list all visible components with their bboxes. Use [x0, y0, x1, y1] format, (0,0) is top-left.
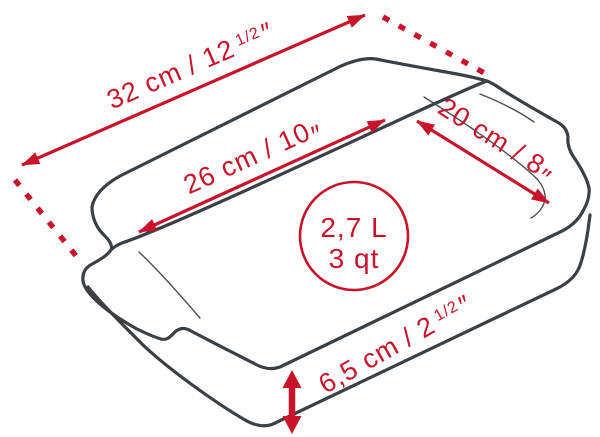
- dim-inner-length-label: 26 cm / 10″: [179, 112, 329, 208]
- dim-height-arrow-head-up: [283, 370, 302, 388]
- dim-outer-length-extension-dotted-right: [383, 17, 488, 75]
- dish-diagram-canvas: 32 cm / 121/2″ 26 cm / 10″ 20 cm / 8″ 6,…: [0, 0, 600, 437]
- capacity-liters-label: 2,7 L: [320, 212, 387, 243]
- dim-unit-mark: ″: [257, 16, 279, 48]
- dim-height-label: 6,5 cm / 21/2″: [314, 289, 478, 399]
- dish-dimension-diagram: 32 cm / 121/2″ 26 cm / 10″ 20 cm / 8″ 6,…: [0, 0, 600, 437]
- dim-width-label: 20 cm / 8″: [429, 92, 561, 194]
- dim-fraction: 1/2: [233, 24, 263, 50]
- dim-value: 32 cm / 12: [102, 33, 239, 115]
- dim-outer-length-extension-dotted-left: [15, 180, 81, 262]
- dim-value: 26 cm / 10: [179, 116, 315, 200]
- dish-cavity-back-edge: [112, 81, 487, 249]
- dish-cavity-front-left-edge-line: [139, 252, 200, 318]
- dim-height-arrow-head-down: [283, 416, 302, 434]
- capacity-quarts-label: 3 qt: [329, 243, 380, 274]
